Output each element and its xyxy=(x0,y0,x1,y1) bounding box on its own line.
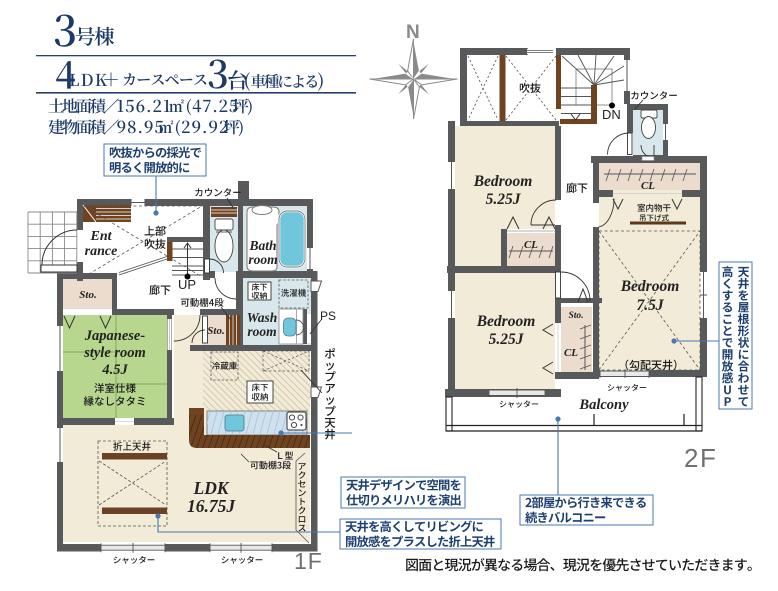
svg-text:1F: 1F xyxy=(294,548,323,574)
svg-text:CL: CL xyxy=(524,239,538,251)
svg-text:style room: style room xyxy=(83,345,146,361)
svg-text:Bath: Bath xyxy=(248,238,276,253)
svg-text:Bedroom: Bedroom xyxy=(473,173,533,190)
svg-text:5.25J: 5.25J xyxy=(489,331,525,348)
svg-text:16.75J: 16.75J xyxy=(187,496,236,516)
svg-text:PS: PS xyxy=(320,309,336,323)
svg-text:Sto.: Sto. xyxy=(568,311,583,321)
svg-text:7.5J: 7.5J xyxy=(636,297,664,314)
svg-text:CL: CL xyxy=(564,347,578,359)
svg-text:Wash: Wash xyxy=(247,310,278,325)
svg-text:rance: rance xyxy=(85,244,118,259)
svg-text:Bedroom: Bedroom xyxy=(476,313,536,330)
svg-text:4.5J: 4.5J xyxy=(101,362,128,378)
svg-text:Ent: Ent xyxy=(89,229,112,244)
svg-text:Japanese-: Japanese- xyxy=(84,328,146,344)
svg-text:room: room xyxy=(247,324,276,339)
svg-text:CL: CL xyxy=(641,180,655,192)
svg-text:DN: DN xyxy=(602,107,621,122)
svg-text:room: room xyxy=(248,252,277,267)
svg-text:2F: 2F xyxy=(684,443,717,473)
svg-text:Sto.: Sto. xyxy=(79,289,96,301)
svg-text:Sto.: Sto. xyxy=(207,325,224,337)
svg-text:5.25J: 5.25J xyxy=(486,191,522,208)
svg-text:UP: UP xyxy=(178,277,196,292)
svg-text:Balcony: Balcony xyxy=(578,397,629,413)
svg-text:N: N xyxy=(406,22,420,43)
svg-text:LDK: LDK xyxy=(193,478,230,498)
svg-text:Bedroom: Bedroom xyxy=(620,278,680,295)
